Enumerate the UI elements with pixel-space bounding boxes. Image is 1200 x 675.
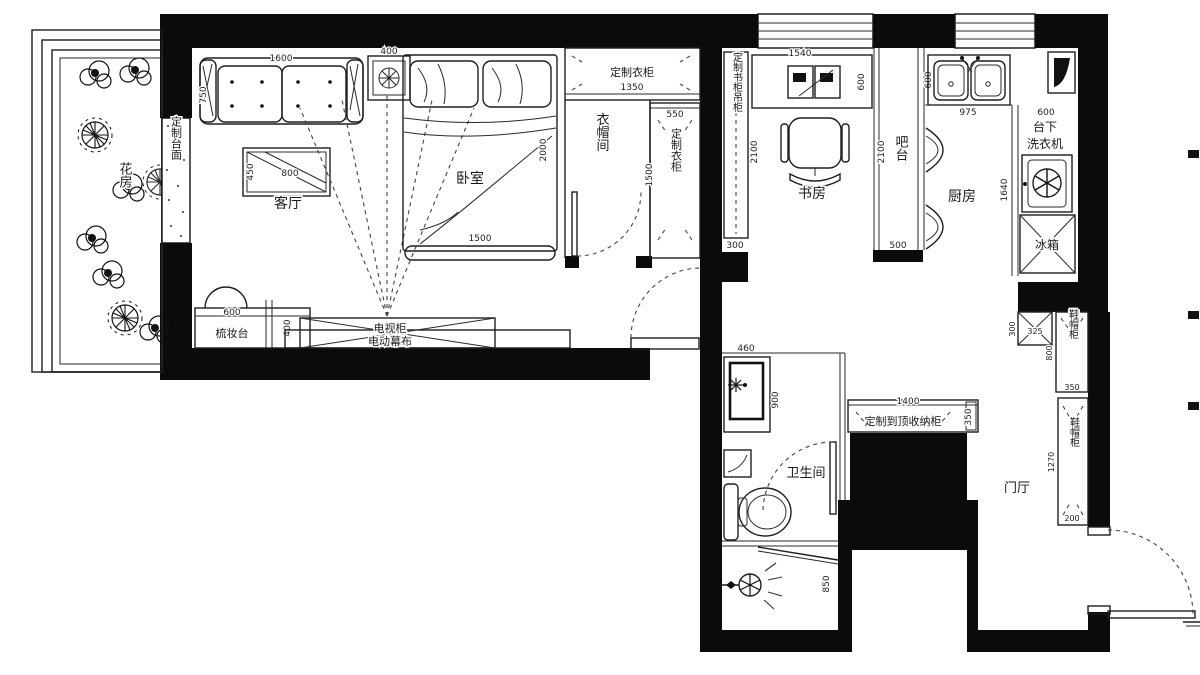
floor-plan: 花房 定制台面 1600 750 — [0, 0, 1200, 675]
dim-shoe-a-width: 350 — [1064, 383, 1079, 392]
bedroom-label: 卧室 — [456, 170, 484, 187]
dim-bar-end: 500 — [889, 241, 906, 251]
bedroom: 卧室 1500 2000 — [403, 55, 557, 260]
washer-label-1: 台下 — [1033, 119, 1057, 134]
bathroom-label: 卫生间 — [786, 466, 825, 481]
dim-table-width: 800 — [281, 169, 298, 179]
wall-bookcase-post — [722, 252, 748, 282]
fridge-label: 冰箱 — [1035, 237, 1059, 252]
study: 书房 1540 600 2100 — [750, 48, 879, 250]
cloakroom-label: 衣帽间 — [594, 112, 610, 152]
custom-counter: 定制台面 — [162, 115, 190, 243]
shoe-cabinet-b-label: 鞋帽柜 — [1068, 416, 1080, 448]
flower-room-label: 花房 — [117, 161, 133, 188]
motor-screen-label: 电动幕布 — [368, 334, 412, 348]
dim-bar-length: 2100 — [877, 140, 887, 163]
corner-cabinet — [1048, 52, 1075, 93]
dim-bookcase-depth: 300 — [726, 241, 743, 251]
study-label: 书房 — [798, 186, 826, 202]
dim-shoe-b-length: 1270 — [1047, 452, 1056, 472]
custom-counter-label: 定制台面 — [170, 115, 183, 160]
wall-bath-bottom — [700, 630, 852, 652]
dim-vanity-length: 900 — [771, 391, 781, 408]
wall-right-top — [1078, 14, 1108, 282]
dim-washer-width: 600 — [1037, 108, 1054, 118]
shoe-cabinet-small: 325 300 — [1008, 312, 1052, 345]
shoe-cabinet-a-label: 鞋帽柜 — [1067, 308, 1079, 340]
bar-label: 吧台 — [893, 135, 908, 161]
flower-room: 花房 — [32, 30, 177, 372]
tv-cabinet: 电视柜 电动幕布 — [285, 96, 570, 348]
dim-sink-width: 975 — [959, 108, 976, 118]
bar-counter: 吧台 2100 500 600 — [877, 48, 934, 251]
projection-lines — [300, 96, 474, 316]
dim-washer-col-length: 1640 — [1000, 178, 1010, 201]
dim-shoe-small-depth: 300 — [1008, 321, 1017, 336]
coffee-table: 800 450 — [243, 148, 330, 196]
wardrobe-top-label: 定制衣柜 — [610, 65, 654, 79]
washer-label-2: 洗衣机 — [1027, 136, 1063, 151]
living-room-label: 客厅 — [274, 195, 302, 212]
storage-cabinet-label: 定制到顶收纳柜 — [865, 414, 942, 428]
bookcase-hang-label: 定制书柜吊柜 — [731, 51, 743, 113]
kitchen-label: 厨房 — [948, 189, 976, 205]
vanity — [724, 357, 770, 432]
dim-vanity-width: 460 — [737, 344, 754, 354]
dim-shower-length: 850 — [822, 575, 832, 592]
double-sink — [928, 55, 1010, 105]
wall-under-kitchen — [1018, 282, 1108, 312]
dim-shoe-b-end: 200 — [1064, 514, 1079, 523]
entry-door — [1088, 527, 1200, 626]
dim-study-length: 2100 — [750, 140, 760, 163]
dim-storage-width: 1400 — [897, 397, 920, 407]
cloakroom: 衣帽间 — [565, 100, 650, 258]
wall-bath-right — [838, 500, 852, 630]
tv-cabinet-label: 电视柜 — [374, 321, 407, 335]
toilet — [724, 484, 791, 540]
wall-storage-mass — [850, 433, 967, 550]
dresser: 600 梳妆台 400 — [195, 287, 310, 348]
dim-sofa-depth: 750 — [199, 86, 209, 103]
desk-chair — [781, 118, 849, 187]
bathroom: 460 900 卫生间 — [722, 344, 845, 609]
window-kitchen — [955, 14, 1035, 48]
dim-sofa-width: 1600 — [270, 54, 293, 64]
shower: 850 — [722, 547, 838, 609]
window-study — [758, 14, 873, 48]
dim-dresser-width: 600 — [223, 308, 240, 318]
dim-wardrobe-side-height: 1500 — [645, 163, 655, 186]
washing-machine — [1022, 155, 1072, 212]
dim-counter-depth: 600 — [924, 71, 934, 88]
wall-closet-study — [700, 48, 722, 348]
dim-shoe-small-width: 325 — [1027, 327, 1042, 336]
dim-bed-width: 1500 — [469, 234, 492, 244]
wardrobe-side: 定制衣柜 550 1500 — [645, 103, 700, 258]
fridge: 冰箱 — [1020, 215, 1075, 273]
storage-cabinet: 1400 定制到顶收纳柜 350 — [848, 397, 978, 432]
shoe-cabinet-b: 鞋帽柜 1270 200 — [1047, 398, 1088, 525]
wall-right-mid — [1088, 312, 1110, 527]
dim-storage-depth: 350 — [964, 408, 974, 425]
dim-desk-depth: 600 — [857, 73, 867, 90]
wardrobe-side-label: 定制衣柜 — [670, 127, 683, 173]
wall-bar-stub — [873, 250, 923, 262]
dim-wardrobe-top: 1350 — [621, 83, 644, 93]
bath-small-square — [724, 450, 751, 477]
dim-wardrobe-side-width: 550 — [666, 110, 683, 120]
living-room: 1600 750 800 450 客厅 400 — [195, 47, 570, 348]
wall-bath-left — [700, 348, 722, 652]
wall-left-upper — [160, 48, 192, 118]
wardrobe-top: 定制衣柜 1350 — [565, 48, 700, 100]
cabinet-door-arcs — [926, 128, 943, 249]
wall-closet-stub-a — [565, 256, 579, 268]
dim-shoe-a-length: 800 — [1045, 345, 1054, 360]
desk-computer — [788, 66, 840, 98]
corridor-door — [631, 268, 700, 349]
kitchen: 975 厨房 — [925, 55, 1018, 276]
bookcase-hang: 定制书柜吊柜 300 — [724, 51, 748, 251]
dim-bed-length: 2000 — [539, 138, 549, 161]
dim-desk-width: 1540 — [789, 49, 812, 59]
dresser-label: 梳妆台 — [216, 326, 249, 340]
edge-markers — [1188, 150, 1199, 410]
sofa: 1600 750 — [199, 54, 363, 124]
cloakroom-door — [572, 192, 641, 256]
dim-nightstand: 400 — [380, 47, 397, 57]
foyer-label: 门厅 — [1004, 481, 1030, 496]
wall-right-door-corner — [1088, 612, 1110, 652]
wall-living-bottom — [160, 348, 650, 380]
wall-foyer-left — [967, 500, 978, 652]
washer-column: 600 台下 洗衣机 1640 冰箱 — [1000, 108, 1075, 273]
dim-table-depth: 450 — [246, 163, 256, 180]
